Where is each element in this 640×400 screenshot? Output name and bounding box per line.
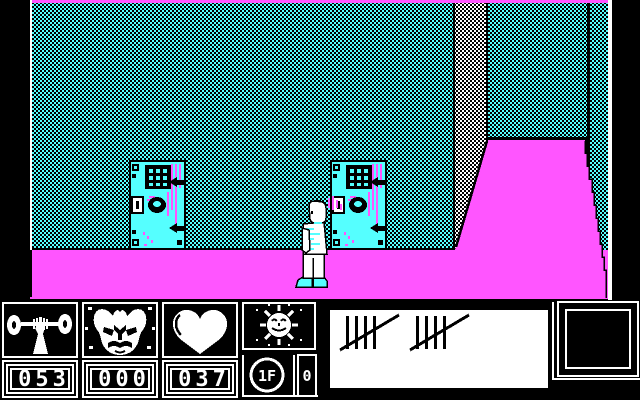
health-value: 037: [178, 367, 230, 392]
game-screen: 053 000: [0, 0, 640, 400]
health-counter: 037: [163, 361, 237, 397]
health-box: [163, 303, 237, 357]
door-right[interactable]: [331, 161, 386, 249]
floor-edge-line: [32, 248, 455, 250]
inventory-slot[interactable]: [552, 302, 640, 380]
door-left[interactable]: [130, 161, 185, 249]
enemy-value: 000: [98, 367, 150, 392]
money-value: 0: [302, 367, 311, 385]
enemy-box: [83, 303, 157, 357]
strength-counter: 053: [3, 361, 77, 397]
ceiling-strip: [32, 0, 608, 3]
wall-main: [32, 0, 453, 250]
right-wall-line: [608, 0, 612, 300]
game-viewport[interactable]: [0, 0, 640, 300]
enemy-counter: 000: [83, 361, 157, 397]
left-wall-line: [30, 0, 32, 250]
strength-box: [3, 303, 77, 357]
coin-icon: 1F: [251, 359, 283, 391]
hud-panel: 053 000: [0, 300, 640, 400]
strength-value: 053: [18, 367, 70, 392]
time-box: [243, 303, 315, 349]
tally-panel: [322, 302, 556, 396]
coin-label: 1F: [258, 367, 276, 385]
wall-upper-right: [488, 0, 587, 137]
